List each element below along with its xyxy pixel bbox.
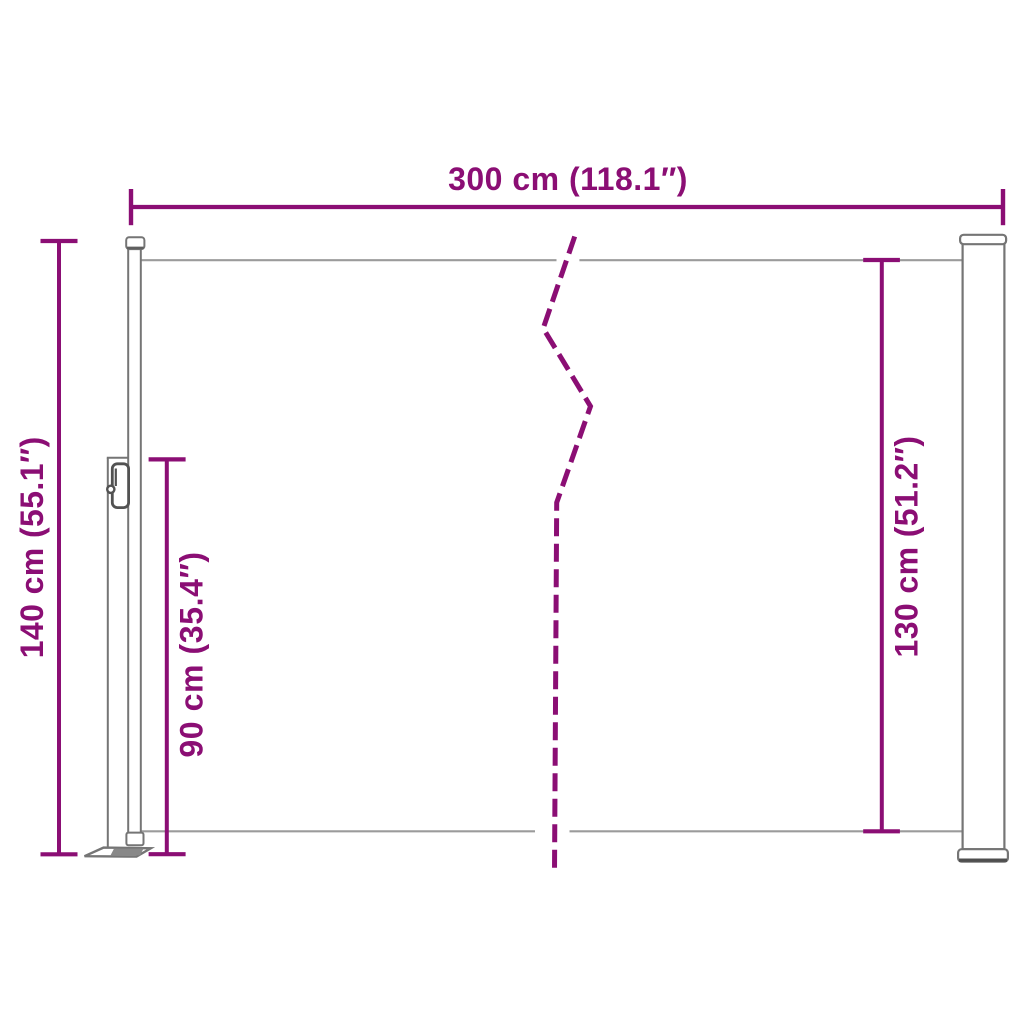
svg-text:90 cm (35.4″): 90 cm (35.4″): [174, 551, 210, 757]
svg-text:140 cm (55.1″): 140 cm (55.1″): [14, 436, 50, 658]
svg-text:130 cm (51.2″): 130 cm (51.2″): [888, 436, 924, 658]
svg-text:300 cm (118.1″): 300 cm (118.1″): [448, 161, 688, 197]
